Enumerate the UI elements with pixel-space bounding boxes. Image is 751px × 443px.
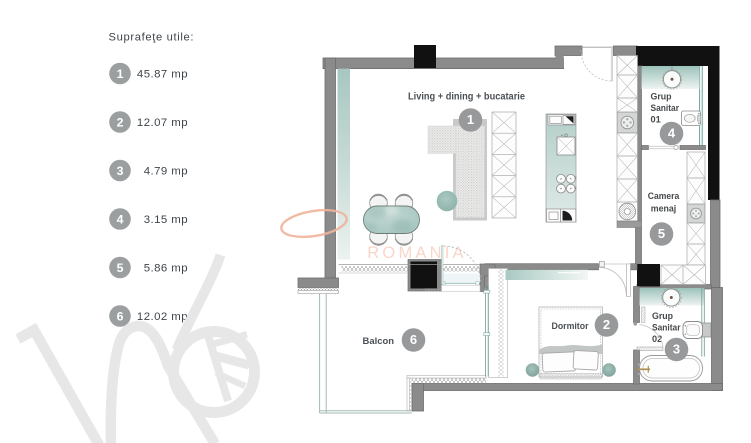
svg-text:Dormitor: Dormitor xyxy=(552,320,589,331)
svg-text:6: 6 xyxy=(410,332,417,347)
svg-text:Camera: Camera xyxy=(648,191,680,201)
svg-text:2: 2 xyxy=(117,115,124,129)
svg-text:12.02 mp: 12.02 mp xyxy=(137,311,188,323)
svg-text:01: 01 xyxy=(651,115,661,125)
svg-text:2: 2 xyxy=(603,317,610,332)
svg-text:6: 6 xyxy=(117,309,124,323)
svg-text:Grup: Grup xyxy=(652,311,673,321)
svg-text:Grup: Grup xyxy=(651,92,672,102)
svg-text:1: 1 xyxy=(117,67,124,81)
svg-text:3: 3 xyxy=(117,164,124,178)
svg-text:5: 5 xyxy=(117,261,124,275)
svg-text:45.87 mp: 45.87 mp xyxy=(137,68,188,80)
svg-text:4: 4 xyxy=(668,126,676,141)
svg-text:Sanitar: Sanitar xyxy=(652,323,681,333)
svg-text:4: 4 xyxy=(117,212,124,226)
svg-text:1: 1 xyxy=(467,112,474,127)
svg-text:4.79 mp: 4.79 mp xyxy=(144,165,188,177)
svg-text:Living + dining + bucatarie: Living + dining + bucatarie xyxy=(408,92,526,103)
svg-text:Suprafeţe utile:: Suprafeţe utile: xyxy=(109,32,195,44)
svg-text:3: 3 xyxy=(673,342,680,357)
svg-text:Sanitar: Sanitar xyxy=(651,103,680,113)
svg-text:ROMANIA: ROMANIA xyxy=(367,244,466,262)
svg-text:Balcon: Balcon xyxy=(363,335,395,346)
svg-text:3.15 mp: 3.15 mp xyxy=(144,214,188,226)
svg-text:12.07 mp: 12.07 mp xyxy=(137,117,188,129)
svg-text:menaj: menaj xyxy=(651,204,677,214)
svg-text:5: 5 xyxy=(658,226,665,241)
svg-text:5.86 mp: 5.86 mp xyxy=(144,262,188,274)
